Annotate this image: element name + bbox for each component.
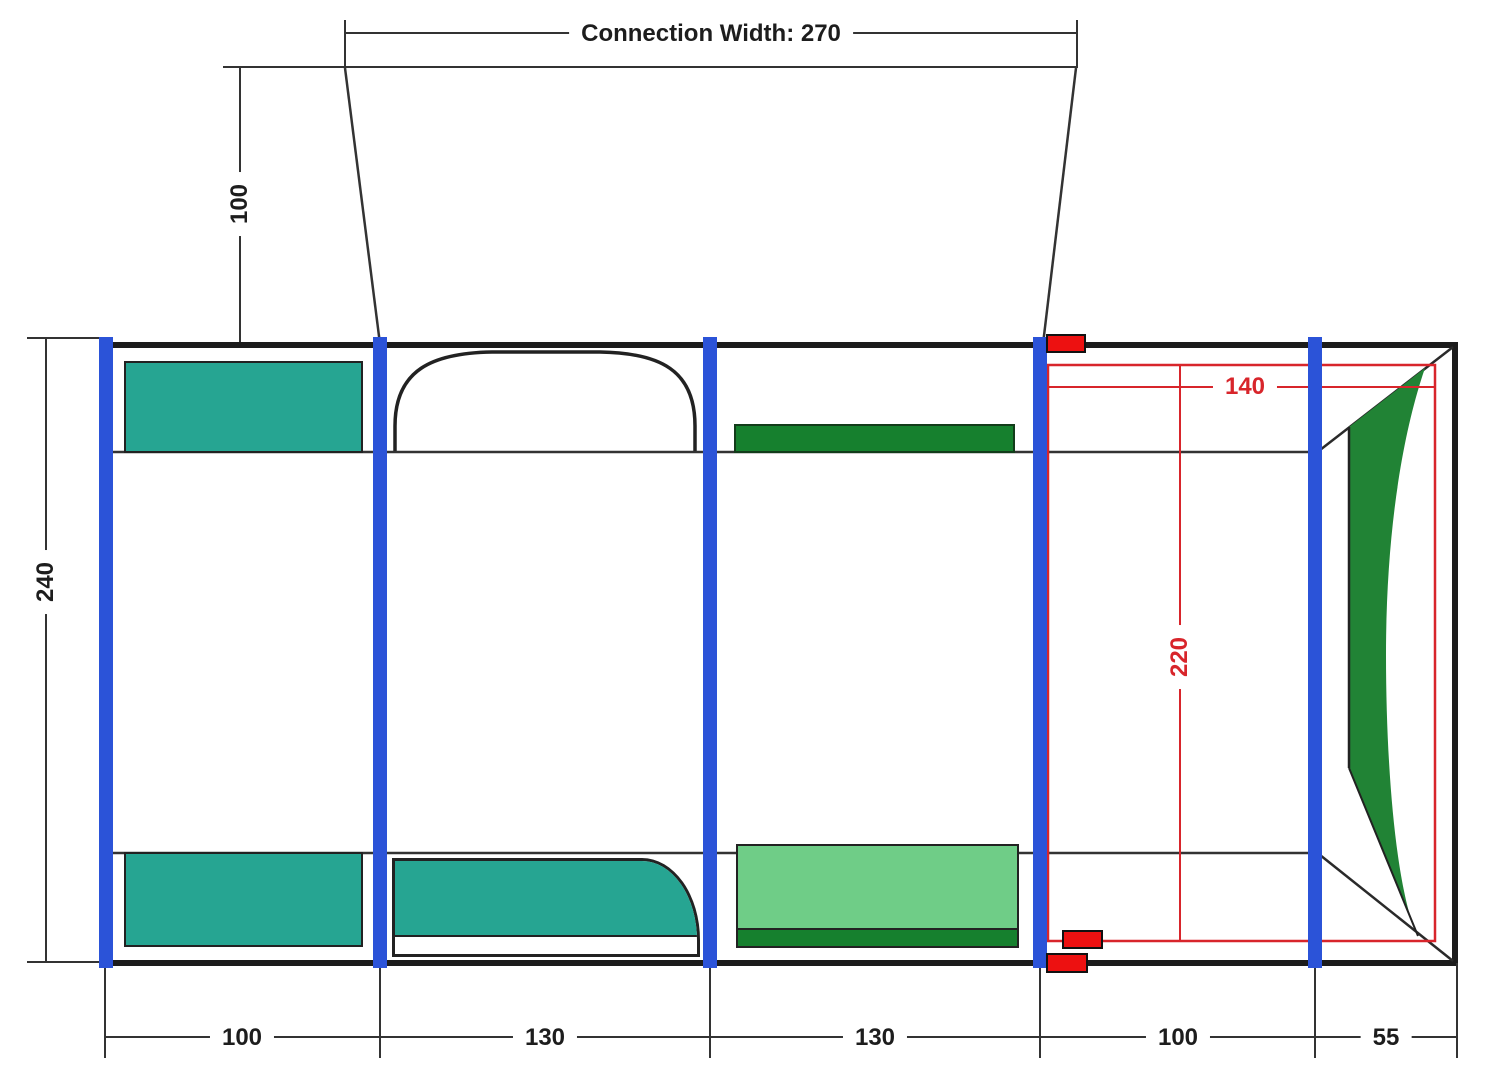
pole-2 (373, 337, 387, 968)
awning-floorplan-diagram: Connection Width: 270 100 240 140 220 10… (0, 0, 1500, 1088)
peg-marker-bottom-inner (1062, 930, 1103, 949)
storage-bar-top (734, 424, 1015, 453)
vehicle-roof-outline (395, 352, 695, 453)
pole-1 (99, 337, 113, 968)
bed-bottom-middle-mattress (395, 861, 697, 937)
connection-tunnel-wall-right (1043, 68, 1076, 344)
peg-marker-top (1046, 334, 1086, 353)
bed-top-left (124, 361, 363, 453)
bed-bottom-middle (392, 858, 700, 957)
bed-bottom-right-base (738, 928, 1017, 946)
pole-3 (703, 337, 717, 968)
dim-label-segment-4: 100 (1146, 1024, 1210, 1052)
dim-label-segment-1: 100 (210, 1024, 274, 1052)
dim-label-total-depth: 240 (32, 550, 60, 614)
rear-diagonal-bottom (1320, 855, 1453, 961)
dim-label-segment-5: 55 (1361, 1024, 1412, 1052)
dim-label-segment-3: 130 (843, 1024, 907, 1052)
dim-label-inner-depth: 220 (1166, 625, 1194, 689)
dim-label-tunnel-depth: 100 (226, 172, 254, 236)
pole-4 (1033, 337, 1047, 968)
dim-label-inner-width: 140 (1213, 373, 1277, 401)
pole-5 (1308, 337, 1322, 968)
dim-label-connection-width: Connection Width: 270 (569, 20, 853, 48)
dim-label-segment-2: 130 (513, 1024, 577, 1052)
peg-marker-bottom-outer (1046, 953, 1088, 973)
bed-bottom-left (124, 852, 363, 947)
bed-bottom-right (736, 844, 1019, 948)
rear-curtain (1349, 368, 1425, 936)
connection-tunnel-wall-left (345, 68, 380, 344)
